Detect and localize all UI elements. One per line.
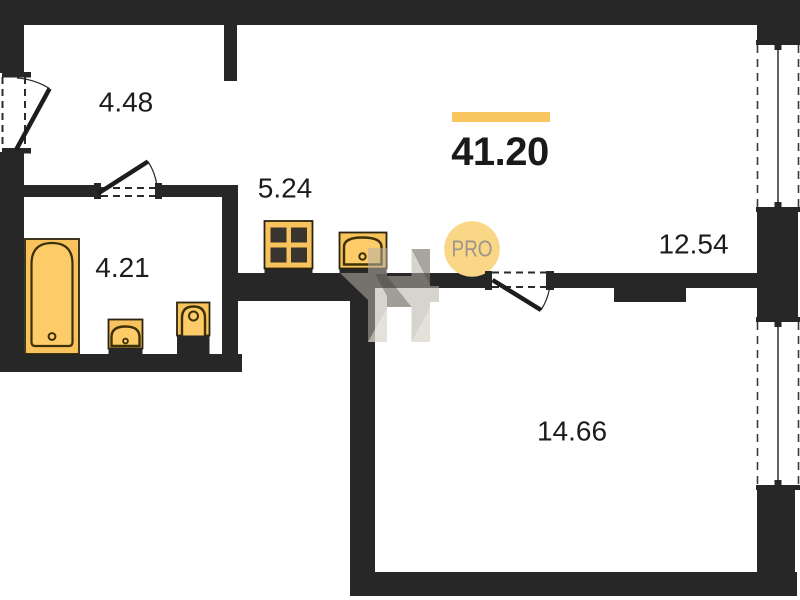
svg-text:12.54: 12.54 — [658, 229, 728, 260]
svg-text:41.20: 41.20 — [451, 130, 549, 174]
svg-text:5.24: 5.24 — [258, 173, 313, 204]
svg-text:14.66: 14.66 — [537, 416, 607, 447]
svg-text:PRO: PRO — [452, 236, 493, 262]
svg-text:4.21: 4.21 — [95, 252, 150, 283]
svg-text:4.48: 4.48 — [99, 87, 154, 118]
